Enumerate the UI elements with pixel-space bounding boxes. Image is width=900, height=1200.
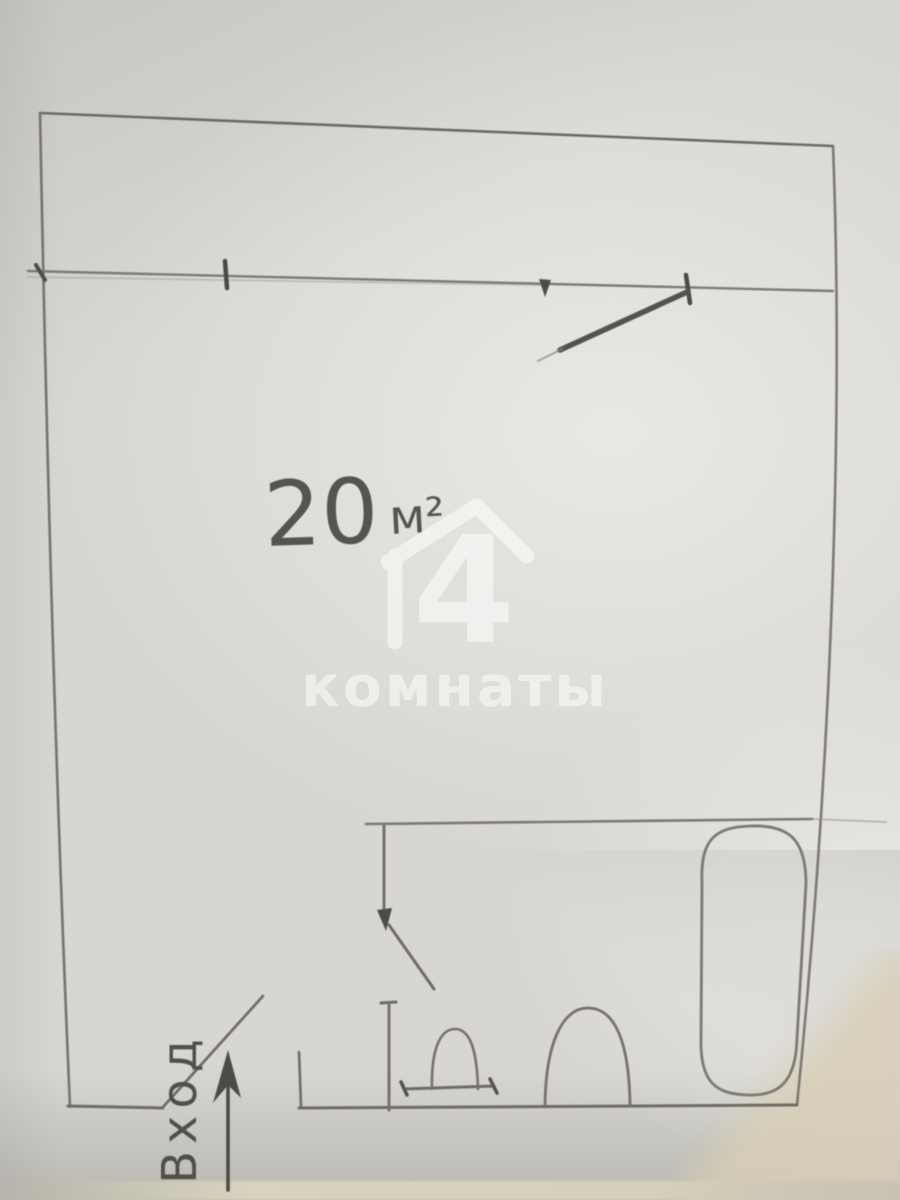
sink-bowl (432, 1029, 478, 1089)
wall-bottom-main (299, 1105, 797, 1108)
sink-base-line (404, 1086, 494, 1089)
floor-plan-photo: 20 м² Вход 4 комнаты (0, 0, 900, 1200)
bathtub (701, 826, 806, 1095)
watermark-brand-text: комнаты (301, 654, 609, 720)
wall-top-inner (28, 271, 833, 291)
door-hinge-tick (686, 275, 690, 303)
area-value-label: 20 (262, 459, 380, 568)
bathroom-wall-top (366, 819, 812, 824)
floor-plan-drawing: 20 м² Вход 4 комнаты (0, 0, 900, 1200)
wall-bottom-left-segment (68, 1106, 163, 1108)
entrance-label: Вход (152, 1032, 208, 1184)
sink (401, 1029, 497, 1095)
bathroom-door-swing (389, 925, 434, 989)
wall-left (40, 113, 70, 1107)
room-door-leaf (560, 292, 687, 350)
wall-top-outer (40, 113, 833, 146)
room-door-leaf-tail (538, 349, 562, 361)
window-tick-1 (225, 261, 227, 288)
window-tick-arrow (539, 279, 551, 297)
bathroom-wall-overshoot (812, 819, 886, 822)
watermark-number: 4 (413, 505, 516, 677)
entrance-door-jamb (299, 1052, 301, 1106)
toilet (545, 1008, 630, 1104)
